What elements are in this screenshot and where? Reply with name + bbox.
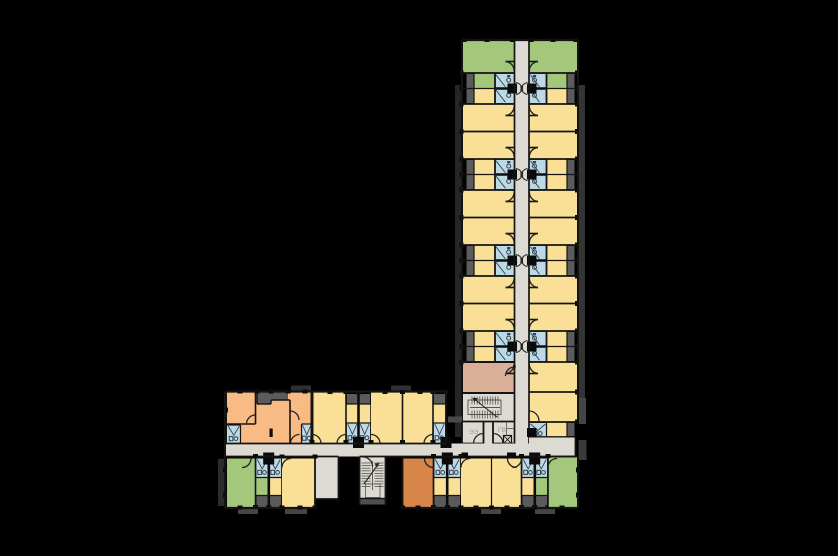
svg-text:ГВ: ГВ (498, 427, 506, 434)
